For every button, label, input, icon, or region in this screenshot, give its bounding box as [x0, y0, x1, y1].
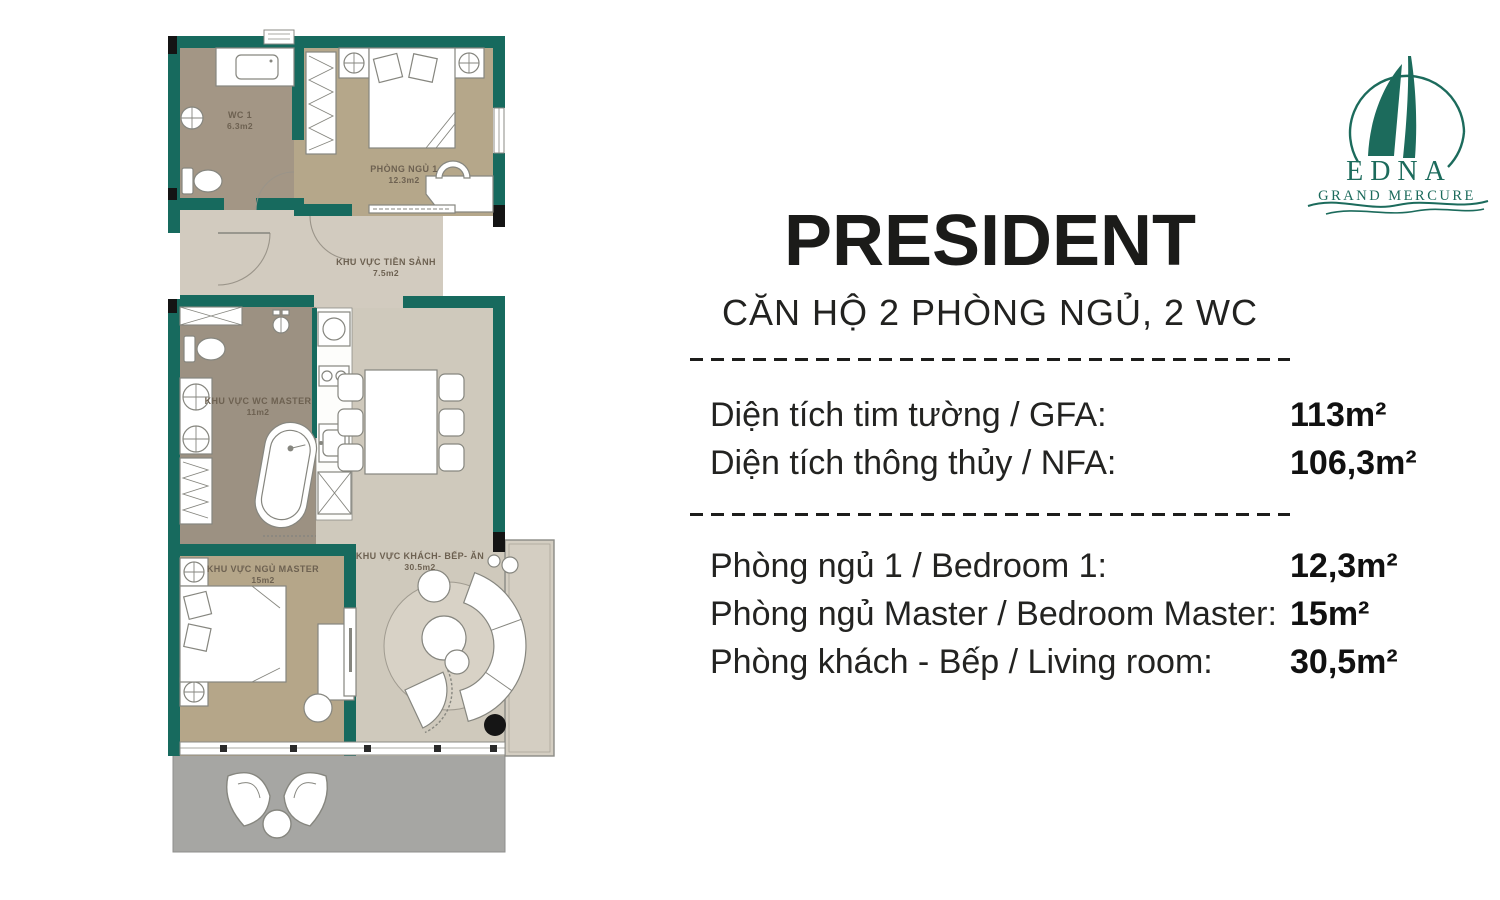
- room-rows: Phòng ngủ 1 / Bedroom 1: 12,3m² Phòng ng…: [690, 542, 1414, 686]
- decor-circle: [488, 555, 500, 567]
- page-subtitle: CĂN HỘ 2 PHÒNG NGỦ, 2 WC: [690, 292, 1290, 334]
- wc1-label: WC 1: [228, 110, 252, 120]
- master-area: 15m2: [251, 575, 274, 585]
- master-label: KHU VỰC NGỦ MASTER: [207, 563, 319, 574]
- hall-label: KHU VỰC TIỀN SẢNH: [336, 256, 436, 267]
- logo-subtitle: GRAND MERCURE: [1318, 188, 1476, 204]
- wc-master-area: 11m2: [247, 407, 270, 417]
- nfa-value: 106,3m²: [1290, 439, 1417, 487]
- area-row-gfa: Diện tích tim tường / GFA: 113m²: [690, 391, 1414, 439]
- floor-plan: WC 1 6.3m2 PHÒNG NGỦ 1 12.3m2 KHU VỰC TI…: [168, 28, 560, 860]
- vanity-stool: [304, 694, 332, 722]
- wcm-toilet: [184, 336, 195, 362]
- room-row-master: Phòng ngủ Master / Bedroom Master: 15m²: [690, 590, 1414, 638]
- pouf: [418, 570, 450, 602]
- dining-chair: [439, 444, 464, 471]
- plant-dot: [484, 714, 506, 736]
- living-label: KHU VỰC KHÁCH- BẾP- ĂN: [356, 551, 484, 561]
- bedroom1-label: PHÒNG NGỦ 1: [370, 163, 437, 174]
- gfa-value: 113m²: [1290, 391, 1386, 439]
- room-row-bedroom1: Phòng ngủ 1 / Bedroom 1: 12,3m²: [690, 542, 1414, 590]
- living-row-label: Phòng khách - Bếp / Living room:: [710, 638, 1213, 686]
- dining-chair: [338, 374, 363, 401]
- dining-chair: [439, 374, 464, 401]
- dashed-divider: [690, 513, 1290, 516]
- info-panel: PRESIDENT CĂN HỘ 2 PHÒNG NGỦ, 2 WC Diện …: [690, 204, 1414, 686]
- wc-master-label: KHU VỰC WC MASTER: [205, 396, 312, 406]
- floor-plan-drawing: WC 1 6.3m2 PHÒNG NGỦ 1 12.3m2 KHU VỰC TI…: [168, 28, 560, 860]
- dining-chair: [439, 409, 464, 436]
- bottom-window-band: [180, 742, 505, 755]
- wc1-area: 6.3m2: [227, 121, 253, 131]
- dashed-divider: [690, 358, 1290, 361]
- nfa-label: Diện tích thông thủy / NFA:: [710, 439, 1116, 487]
- area-rows: Diện tích tim tường / GFA: 113m² Diện tí…: [690, 391, 1414, 487]
- balcony: [173, 748, 505, 852]
- exterior-notch: [443, 216, 505, 296]
- wc1-toilet: [182, 168, 193, 194]
- balcony-table: [263, 810, 291, 838]
- master-row-label: Phòng ngủ Master / Bedroom Master:: [710, 590, 1277, 638]
- decor-circle: [502, 557, 518, 573]
- page: WC 1 6.3m2 PHÒNG NGỦ 1 12.3m2 KHU VỰC TI…: [0, 0, 1500, 900]
- sail-large: [1368, 64, 1402, 156]
- room-row-living: Phòng khách - Bếp / Living room: 30,5m²: [690, 638, 1414, 686]
- brand-logo: EDNA GRAND MERCURE: [1302, 34, 1492, 216]
- page-title: PRESIDENT: [690, 204, 1290, 280]
- sail-small: [1403, 56, 1416, 158]
- bedroom1-row-label: Phòng ngủ 1 / Bedroom 1:: [710, 542, 1107, 590]
- dining-table: [365, 370, 437, 474]
- dining-set: [338, 370, 464, 474]
- bedroom1-area: 12.3m2: [388, 175, 419, 185]
- top-vent: [264, 30, 294, 44]
- side-table: [445, 650, 469, 674]
- sailboat-icon: [1350, 56, 1464, 167]
- living-row-value: 30,5m²: [1290, 638, 1398, 686]
- master-row-value: 15m²: [1290, 590, 1369, 638]
- living-area: 30.5m2: [404, 562, 435, 572]
- dining-chair: [338, 409, 363, 436]
- logo-name: EDNA: [1346, 156, 1452, 187]
- bedroom1-row-value: 12,3m²: [1290, 542, 1398, 590]
- dining-chair: [338, 444, 363, 471]
- gfa-label: Diện tích tim tường / GFA:: [710, 391, 1107, 439]
- area-row-nfa: Diện tích thông thủy / NFA: 106,3m²: [690, 439, 1414, 487]
- hall-area: 7.5m2: [373, 268, 399, 278]
